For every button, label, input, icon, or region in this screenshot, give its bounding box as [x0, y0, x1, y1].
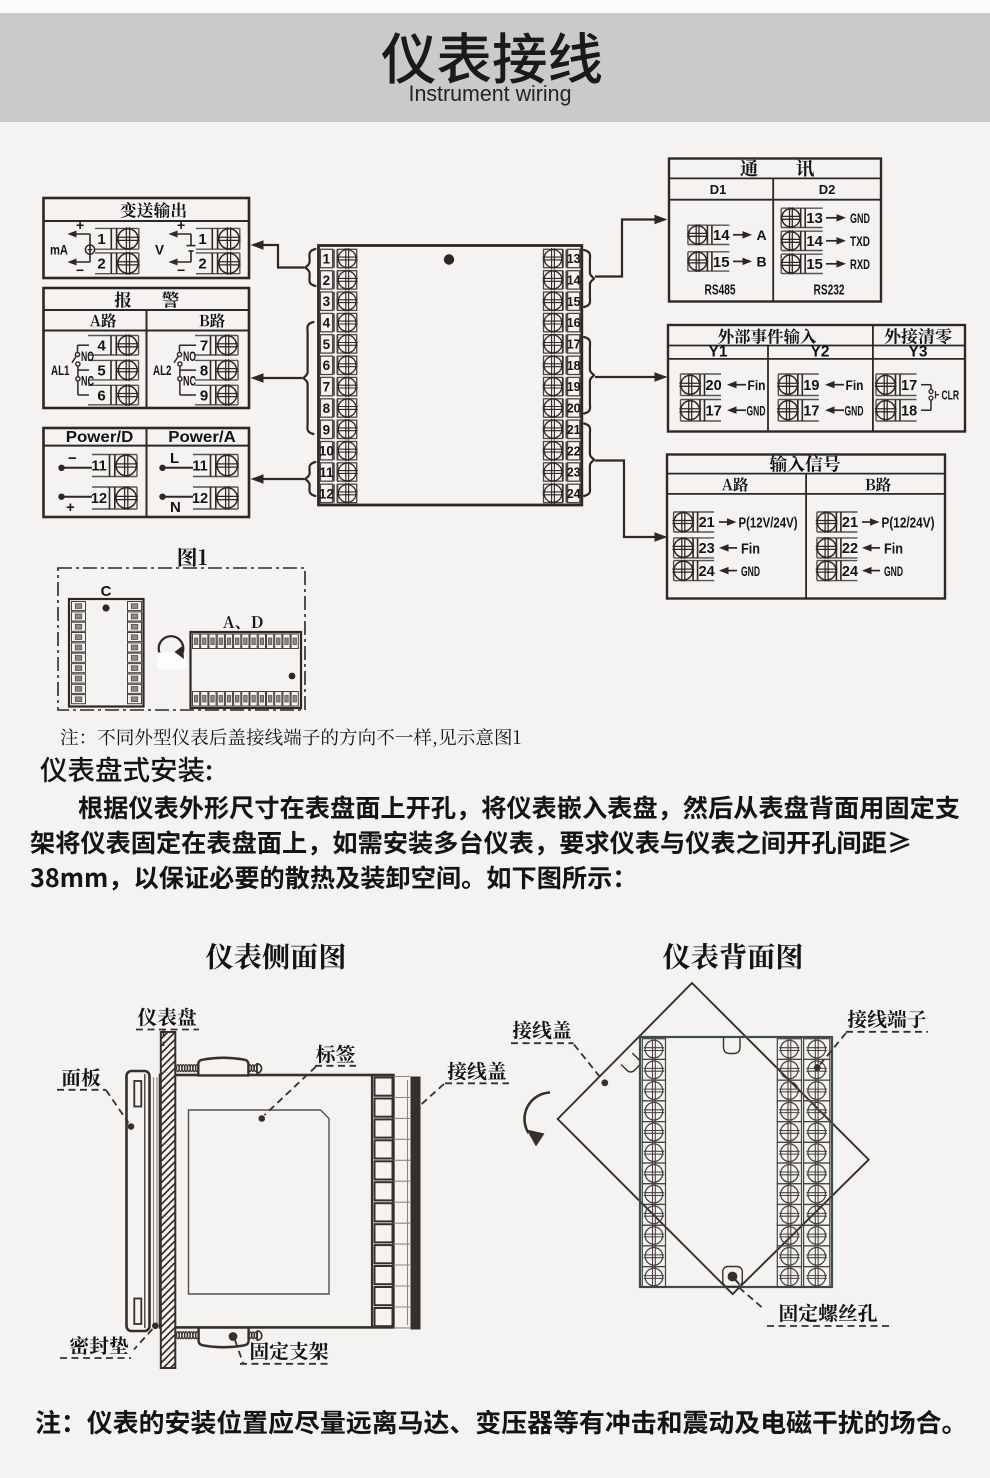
- svg-text:2: 2: [198, 256, 206, 273]
- svg-text:CLR: CLR: [942, 388, 960, 403]
- svg-text:D1: D1: [710, 182, 727, 197]
- svg-text:+: +: [66, 499, 75, 516]
- svg-text:4: 4: [323, 316, 331, 331]
- svg-text:V: V: [155, 243, 164, 258]
- svg-text:Fin: Fin: [741, 542, 760, 558]
- svg-text:15: 15: [567, 295, 581, 309]
- svg-text:RXD: RXD: [850, 257, 870, 272]
- svg-text:GND: GND: [845, 404, 864, 419]
- svg-text:GND: GND: [884, 563, 903, 579]
- svg-text:12: 12: [192, 491, 208, 507]
- svg-text:6: 6: [97, 387, 105, 404]
- svg-text:24: 24: [567, 487, 581, 501]
- svg-text:9: 9: [323, 422, 331, 437]
- svg-text:4: 4: [97, 338, 106, 355]
- svg-text:−: −: [76, 262, 84, 278]
- svg-text:12: 12: [319, 486, 334, 501]
- svg-text:Y3: Y3: [909, 344, 928, 361]
- svg-text:A: A: [757, 227, 767, 243]
- svg-text:24: 24: [842, 564, 858, 580]
- svg-text:−: −: [68, 450, 77, 467]
- svg-text:GND: GND: [850, 211, 870, 226]
- svg-text:RS485: RS485: [705, 282, 736, 299]
- svg-text:15: 15: [806, 256, 823, 273]
- svg-text:17: 17: [901, 378, 917, 394]
- svg-text:3: 3: [323, 294, 331, 309]
- svg-text:AL2: AL2: [153, 363, 172, 378]
- svg-text:GND: GND: [747, 404, 766, 419]
- svg-text:21: 21: [567, 423, 581, 437]
- svg-text:2: 2: [323, 273, 331, 288]
- svg-text:Power/A: Power/A: [168, 429, 236, 446]
- svg-text:AL1: AL1: [51, 363, 70, 378]
- svg-text:16: 16: [567, 316, 581, 330]
- svg-text:GND: GND: [741, 563, 760, 579]
- svg-text:12: 12: [91, 491, 107, 507]
- svg-text:9: 9: [200, 387, 208, 404]
- svg-text:7: 7: [323, 380, 331, 395]
- svg-text:1: 1: [198, 231, 206, 248]
- svg-text:8: 8: [200, 363, 208, 380]
- svg-text:B: B: [757, 254, 767, 270]
- svg-text:23: 23: [699, 541, 715, 557]
- svg-text:19: 19: [803, 378, 819, 394]
- svg-text:RS232: RS232: [814, 282, 845, 299]
- svg-text:P(12V/24V): P(12V/24V): [739, 515, 798, 532]
- svg-text:15: 15: [713, 254, 730, 271]
- svg-text:13: 13: [806, 210, 823, 227]
- svg-text:18: 18: [567, 359, 581, 373]
- svg-text:23: 23: [567, 466, 581, 480]
- svg-text:mA: mA: [50, 243, 68, 258]
- svg-text:Power/D: Power/D: [66, 429, 134, 446]
- svg-text:5: 5: [97, 363, 105, 380]
- svg-text:NO: NO: [81, 349, 94, 364]
- svg-text:6: 6: [323, 358, 331, 373]
- svg-text:NO: NO: [183, 349, 196, 364]
- svg-text:14: 14: [806, 233, 823, 250]
- svg-text:10: 10: [319, 444, 334, 459]
- svg-text:11: 11: [192, 459, 207, 475]
- svg-text:17: 17: [706, 404, 722, 420]
- svg-text:1: 1: [323, 252, 331, 267]
- svg-text:13: 13: [567, 252, 581, 266]
- svg-text:7: 7: [200, 338, 208, 355]
- svg-text:Y1: Y1: [709, 344, 728, 361]
- svg-text:14: 14: [713, 227, 730, 244]
- svg-text:20: 20: [706, 378, 722, 394]
- svg-text:2: 2: [97, 256, 105, 273]
- svg-text:17: 17: [567, 338, 581, 352]
- svg-text:+: +: [76, 217, 84, 233]
- svg-text:−: −: [177, 262, 185, 278]
- svg-text:22: 22: [567, 444, 581, 458]
- svg-text:Fin: Fin: [884, 542, 903, 558]
- svg-text:22: 22: [842, 541, 858, 557]
- svg-text:NC: NC: [81, 374, 94, 389]
- svg-text:19: 19: [567, 380, 581, 394]
- svg-text:21: 21: [842, 515, 858, 531]
- svg-text:5: 5: [323, 337, 331, 352]
- svg-text:N: N: [170, 499, 181, 516]
- svg-text:D2: D2: [819, 182, 836, 197]
- svg-text:8: 8: [323, 401, 331, 416]
- svg-text:+: +: [177, 217, 185, 233]
- svg-text:24: 24: [699, 564, 715, 580]
- svg-text:20: 20: [567, 402, 581, 416]
- svg-text:14: 14: [567, 274, 581, 288]
- svg-text:P(12/24V): P(12/24V): [882, 515, 935, 532]
- svg-text:L: L: [170, 450, 179, 467]
- svg-text:Y2: Y2: [811, 344, 830, 361]
- svg-text:1: 1: [97, 231, 105, 248]
- svg-text:C: C: [101, 583, 112, 600]
- svg-text:NC: NC: [183, 374, 196, 389]
- svg-text:TXD: TXD: [850, 234, 870, 249]
- svg-text:11: 11: [319, 465, 334, 480]
- svg-text:21: 21: [699, 515, 715, 531]
- svg-text:Fin: Fin: [846, 377, 864, 393]
- svg-text:18: 18: [901, 404, 917, 420]
- svg-text:17: 17: [803, 404, 819, 420]
- svg-text:11: 11: [91, 459, 106, 475]
- svg-text:Instrument wiring: Instrument wiring: [409, 81, 572, 106]
- svg-text:Fin: Fin: [748, 377, 766, 393]
